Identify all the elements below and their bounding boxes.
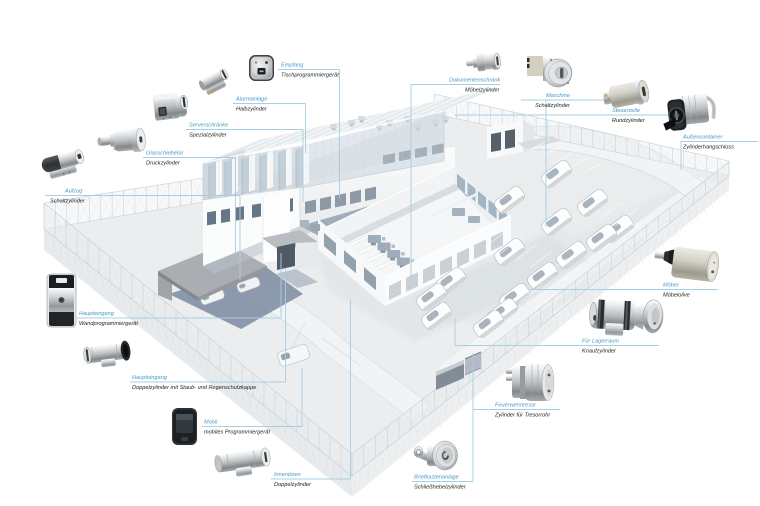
svg-text:Zylinderhangschloss: Zylinderhangschloss bbox=[682, 145, 734, 151]
svg-text:Zylinder für Tresorrohr: Zylinder für Tresorrohr bbox=[494, 413, 551, 419]
svg-text:Doppelzylinder mit Staub- und: Doppelzylinder mit Staub- und Regenschut… bbox=[132, 385, 256, 391]
svg-text:Doppelzylinder: Doppelzylinder bbox=[274, 482, 312, 488]
svg-text:Empfang: Empfang bbox=[281, 63, 304, 69]
svg-text:Wandprogrammiergerät: Wandprogrammiergerät bbox=[79, 321, 138, 327]
svg-text:mobiles Programmiergerät: mobiles Programmiergerät bbox=[204, 430, 270, 436]
svg-text:Für Lagerraum: Für Lagerraum bbox=[582, 339, 619, 345]
svg-text:Dokumentenschrank: Dokumentenschrank bbox=[449, 78, 502, 84]
svg-text:Druckzylinder: Druckzylinder bbox=[146, 161, 181, 167]
svg-text:Möbelzylinder: Möbelzylinder bbox=[465, 88, 501, 94]
svg-text:Steuerzelle: Steuerzelle bbox=[612, 108, 640, 114]
svg-text:Alarmanlage: Alarmanlage bbox=[235, 97, 267, 103]
svg-text:Mobil: Mobil bbox=[204, 420, 218, 426]
svg-text:Glasschiebetür: Glasschiebetür bbox=[146, 151, 184, 157]
svg-text:Schaltzylinder: Schaltzylinder bbox=[50, 199, 86, 205]
svg-text:Aufzug: Aufzug bbox=[64, 189, 83, 195]
svg-text:Schaltzylinder: Schaltzylinder bbox=[535, 103, 571, 109]
svg-text:Schließhebelzylinder: Schließhebelzylinder bbox=[414, 485, 467, 491]
svg-text:Feuerwehrtresor: Feuerwehrtresor bbox=[495, 403, 537, 409]
svg-text:Haupteingang: Haupteingang bbox=[79, 311, 115, 317]
svg-text:Briefkastenanlage: Briefkastenanlage bbox=[414, 475, 459, 481]
svg-text:Spezialzylinder: Spezialzylinder bbox=[189, 133, 228, 139]
svg-text:Möbel: Möbel bbox=[663, 283, 679, 289]
svg-text:Haupteingang: Haupteingang bbox=[132, 375, 168, 381]
svg-text:Knaufzylinder: Knaufzylinder bbox=[582, 349, 617, 355]
svg-text:Außencontainer: Außencontainer bbox=[682, 135, 724, 141]
svg-text:Rundzylinder: Rundzylinder bbox=[612, 118, 646, 124]
svg-text:Tischprogrammiergerät: Tischprogrammiergerät bbox=[281, 73, 339, 79]
svg-text:Innentüren: Innentüren bbox=[274, 472, 301, 478]
svg-text:Serverschränke: Serverschränke bbox=[189, 123, 228, 129]
svg-text:Halbzylinder: Halbzylinder bbox=[236, 107, 268, 113]
svg-text:Maschine: Maschine bbox=[546, 93, 570, 99]
svg-text:Möbelolive: Möbelolive bbox=[663, 293, 690, 299]
